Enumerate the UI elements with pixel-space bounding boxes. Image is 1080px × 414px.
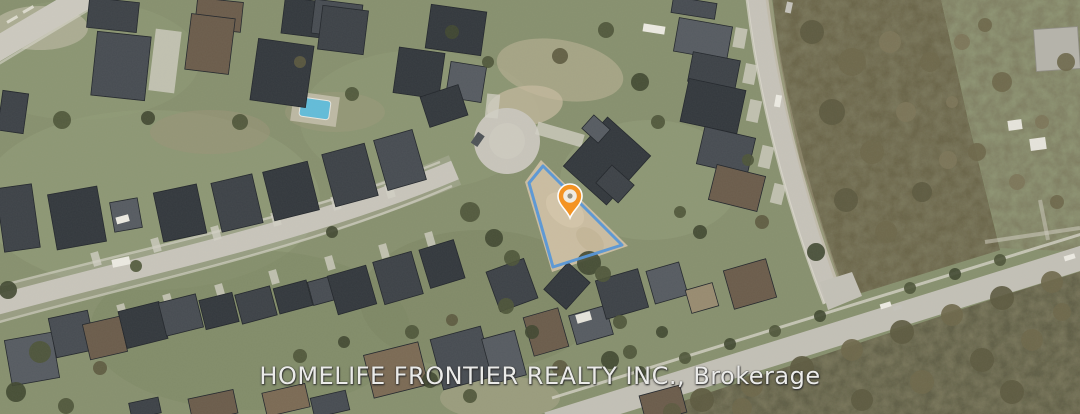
photo-grain-overlay xyxy=(0,0,1080,414)
aerial-listing-photo: HOMELIFE FRONTIER REALTY INC., Brokerage xyxy=(0,0,1080,414)
aerial-map xyxy=(0,0,1080,414)
